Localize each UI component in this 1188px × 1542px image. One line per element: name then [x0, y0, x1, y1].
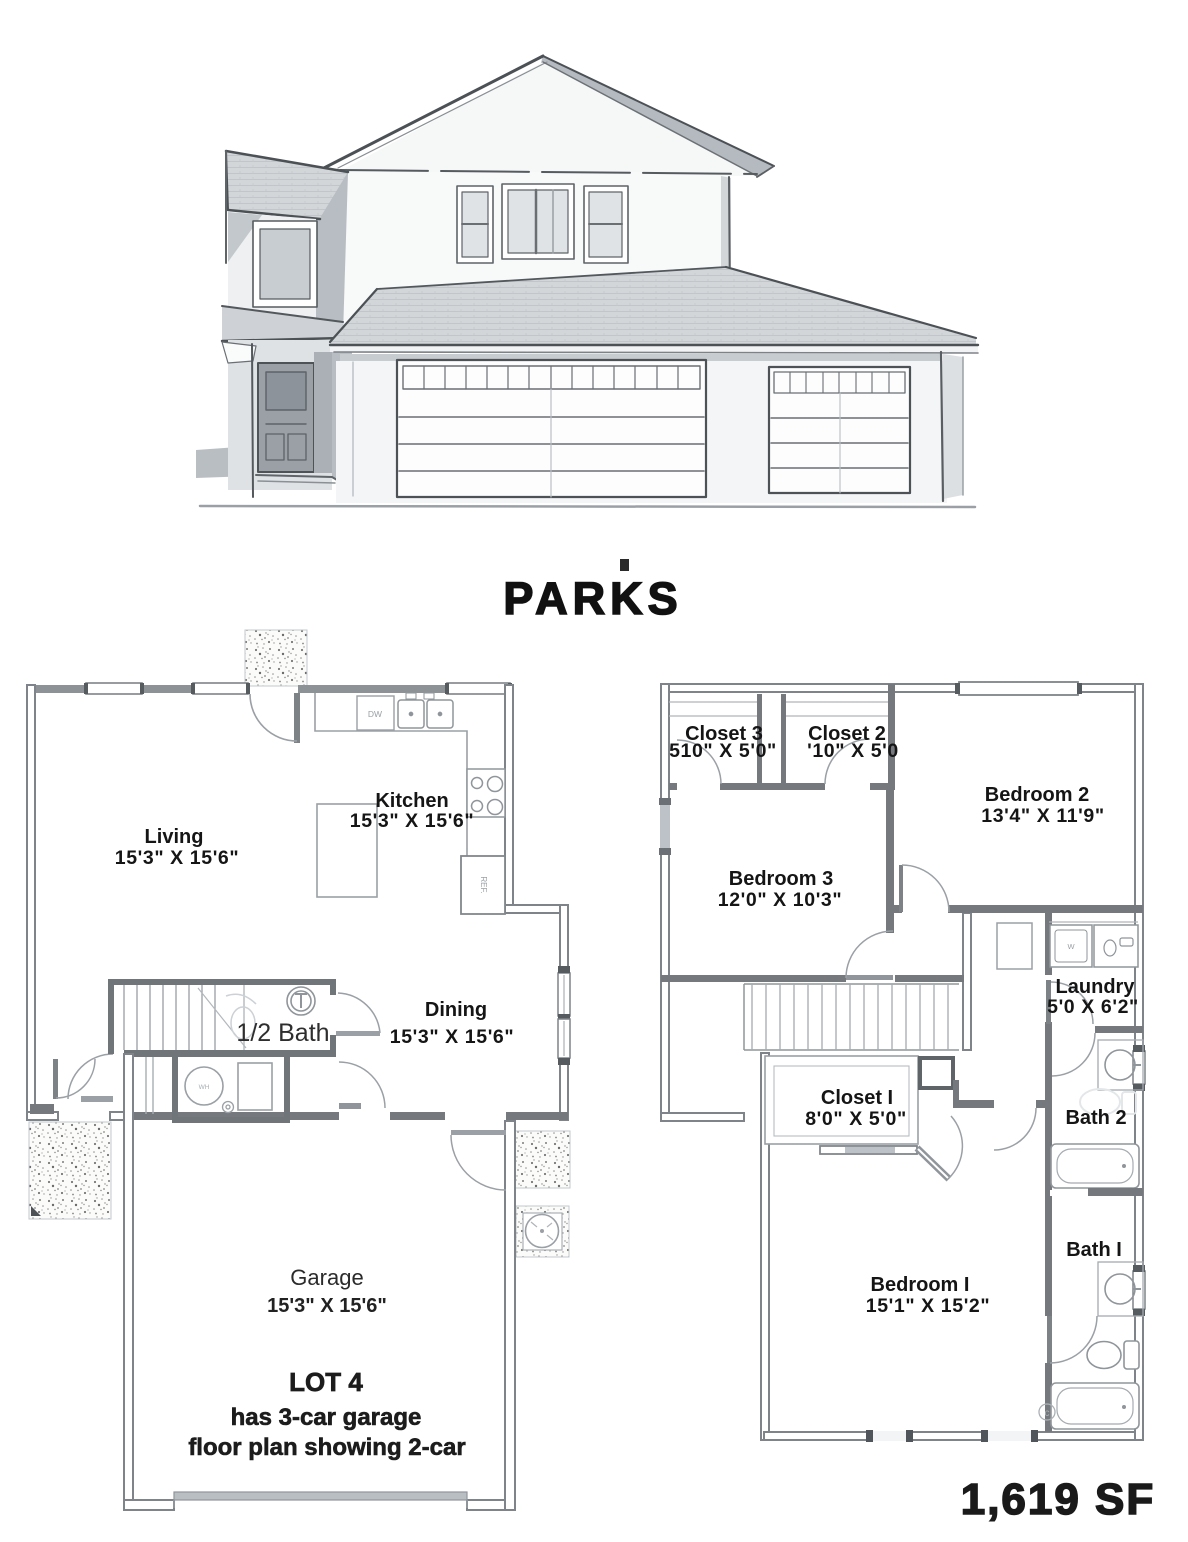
svg-text:510" X 5'0": 510" X 5'0": [669, 740, 777, 762]
svg-text:Bedroom 3: Bedroom 3: [729, 868, 833, 890]
svg-text:Bath I: Bath I: [1066, 1239, 1122, 1261]
svg-text:15'3" X 15'6": 15'3" X 15'6": [350, 810, 474, 832]
svg-text:15'1" X 15'2": 15'1" X 15'2": [866, 1295, 990, 1317]
svg-text:REF.: REF.: [479, 876, 488, 893]
svg-text:LOT 4: LOT 4: [289, 1367, 363, 1397]
svg-text:DW: DW: [368, 709, 382, 719]
svg-text:1/2 Bath: 1/2 Bath: [236, 1019, 329, 1047]
svg-text:Garage: Garage: [290, 1265, 363, 1290]
svg-text:Laundry: Laundry: [1056, 976, 1136, 998]
svg-text:Living: Living: [145, 826, 204, 848]
svg-text:15'3" X 15'6": 15'3" X 15'6": [267, 1295, 387, 1317]
svg-text:Kitchen: Kitchen: [375, 790, 448, 812]
svg-text:PARKS: PARKS: [503, 573, 682, 624]
svg-text:13'4" X 11'9": 13'4" X 11'9": [981, 805, 1104, 827]
svg-text:'10" X 5'0: '10" X 5'0: [807, 740, 899, 762]
svg-text:has 3-car garage: has 3-car garage: [231, 1404, 422, 1431]
svg-text:15'3" X 15'6": 15'3" X 15'6": [115, 847, 239, 869]
svg-text:12'0" X 10'3": 12'0" X 10'3": [718, 889, 842, 911]
svg-text:WH: WH: [199, 1084, 210, 1091]
svg-text:Bath 2: Bath 2: [1065, 1107, 1126, 1129]
svg-text:c: c: [1045, 1408, 1050, 1419]
svg-text:8'0" X 5'0": 8'0" X 5'0": [805, 1108, 907, 1130]
svg-text:15'3" X 15'6": 15'3" X 15'6": [390, 1026, 514, 1048]
svg-text:Bedroom 2: Bedroom 2: [985, 784, 1089, 806]
svg-text:5'0 X 6'2": 5'0 X 6'2": [1047, 996, 1139, 1018]
svg-text:W: W: [1067, 942, 1075, 951]
svg-text:Dining: Dining: [425, 999, 487, 1021]
svg-text:1,619 SF: 1,619 SF: [961, 1475, 1156, 1524]
svg-text:Bedroom I: Bedroom I: [871, 1274, 970, 1296]
svg-text:floor plan showing 2-car: floor plan showing 2-car: [188, 1434, 465, 1461]
svg-text:Closet I: Closet I: [821, 1087, 893, 1109]
